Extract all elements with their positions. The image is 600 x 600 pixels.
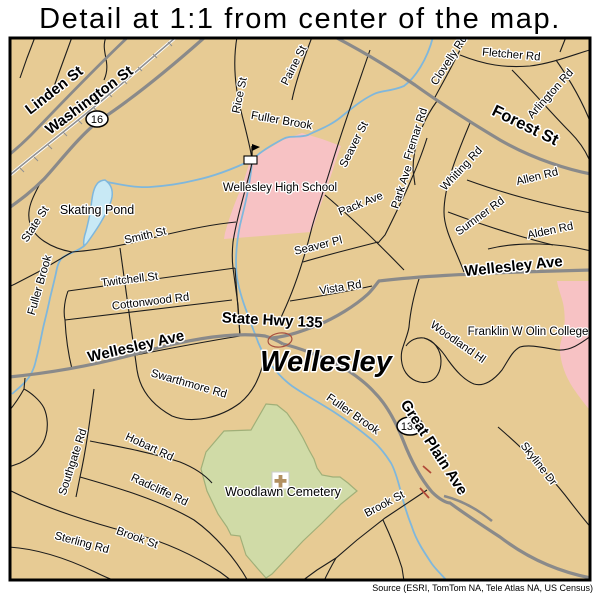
- svg-text:Woodlawn Cemetery: Woodlawn Cemetery: [225, 485, 342, 499]
- svg-text:Wellesley High School: Wellesley High School: [223, 182, 337, 194]
- svg-text:16: 16: [91, 114, 103, 126]
- svg-text:Skating Pond: Skating Pond: [60, 203, 134, 217]
- svg-text:Franklin W Olin College: Franklin W Olin College: [468, 326, 589, 338]
- svg-text:Wellesley: Wellesley: [260, 346, 394, 378]
